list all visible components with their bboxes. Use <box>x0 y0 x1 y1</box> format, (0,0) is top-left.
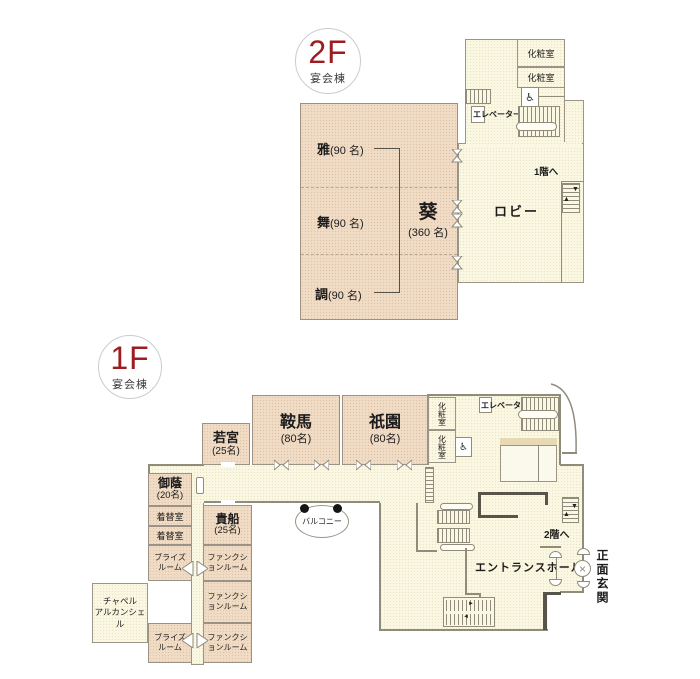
overhang-strip <box>500 438 557 445</box>
floor-plan-canvas: 2F 宴会棟 雅(90 名) 舞(90 名) 調(90 名) 葵 (360 名)… <box>0 0 700 679</box>
door-icon <box>314 459 329 471</box>
door-icon <box>451 200 463 214</box>
revolving-door-icon: × <box>574 560 591 577</box>
stairs-icon <box>437 510 470 524</box>
stair-handrail <box>440 544 475 551</box>
wheelchair-icon: ♿ <box>459 442 468 453</box>
arrow-right-icon: ► <box>468 601 474 607</box>
room-miyabi-label: 雅(90 名) <box>317 139 364 158</box>
door-opening <box>221 462 235 467</box>
arrow-up-icon: ▲ <box>563 511 570 518</box>
bracket-tick-bottom <box>374 292 400 293</box>
wall-segment <box>379 503 381 631</box>
door-icon <box>451 256 463 270</box>
wall-segment <box>148 464 204 466</box>
door-swing-icon <box>577 548 590 555</box>
stairs-icon <box>562 497 579 523</box>
chapel-label: チャペル アルカンシェル <box>93 596 147 629</box>
wheelchair-access-box: ♿ <box>455 437 472 457</box>
stair-handrail <box>516 122 557 131</box>
wall-segment <box>561 181 584 182</box>
windbreak-wall <box>543 592 547 630</box>
floor2-level-label: 2F <box>308 36 347 68</box>
door-icon <box>397 459 412 471</box>
room-divider-dashed-2 <box>301 254 457 255</box>
balcony-label: バルコニー <box>302 516 342 527</box>
stairs-icon <box>465 89 491 104</box>
arrow-down-icon: ▼ <box>572 186 579 193</box>
room-dressing-1: 着替室 <box>148 506 192 526</box>
door-arrows-icon <box>182 561 208 576</box>
door-icon <box>356 459 371 471</box>
arrow-left-icon: ◄ <box>463 614 469 620</box>
room-gion: 祇園(80名) <box>342 395 428 465</box>
door-icon <box>451 149 463 163</box>
stairs-icon <box>446 614 492 625</box>
wall-segment <box>562 452 577 454</box>
room-mai-label: 舞(90 名) <box>317 212 364 231</box>
floor1-powder-room-2: 化粧室 <box>428 430 456 463</box>
room-divider-dashed-1 <box>301 187 457 188</box>
floor2-powder-room-1: 化粧室 <box>517 39 565 67</box>
wall-segment <box>560 464 584 466</box>
door-opening <box>221 500 235 505</box>
wheelchair-icon: ♿ <box>525 91 535 104</box>
room-wakamiya: 若宮(25名) <box>202 423 250 465</box>
room-aoi-label: 葵 (360 名) <box>400 197 456 240</box>
room-shirabe-label: 調(90 名) <box>315 284 362 303</box>
pillar-dot <box>333 504 342 513</box>
floor2-building-label: 宴会棟 <box>310 70 346 86</box>
floor2-lobby-right-extension <box>565 100 584 144</box>
arrow-up-icon: ▲ <box>563 196 570 203</box>
wall-segment <box>416 503 418 552</box>
bracket-tick-top <box>374 148 400 149</box>
floor1-powder-room-1: 化粧室 <box>428 397 456 430</box>
floor2-elevator-label: エレベーター <box>473 109 521 120</box>
room-function-3: ファンクションルーム <box>203 623 252 663</box>
to-floor2-label: 2階へ <box>544 526 570 541</box>
wheelchair-access-box: ♿ <box>521 87 539 107</box>
floor1-building-label: 宴会棟 <box>112 376 148 392</box>
wall-segment <box>556 558 557 579</box>
steps-icon <box>425 467 434 503</box>
floor2-powder-room-2: 化粧室 <box>517 67 565 88</box>
room-function-1: ファンクションルーム <box>203 545 252 581</box>
interior-wall <box>545 492 548 505</box>
wall-segment <box>540 546 561 548</box>
interior-wall <box>478 492 548 495</box>
to-floor1-label: 1階へ <box>534 164 558 178</box>
door-icon <box>451 214 463 228</box>
lobby-label: ロビー <box>494 201 539 220</box>
room-mikage: 御蔭(20名) <box>148 473 192 506</box>
hall-corner-notch <box>548 593 584 631</box>
wall-segment <box>465 548 467 595</box>
door-leaf <box>196 477 204 494</box>
main-entrance-label: 正面玄関 <box>594 549 611 605</box>
room-kifune: 貴船(25名) <box>203 505 252 545</box>
door-icon <box>274 459 289 471</box>
floor1-badge: 1F 宴会棟 <box>98 335 162 399</box>
lobby-merge-patch <box>466 142 582 146</box>
wall-segment <box>416 550 437 552</box>
arrow-down-icon: ▼ <box>571 503 578 510</box>
floor2-badge: 2F 宴会棟 <box>295 28 361 94</box>
entrance-hall-label: エントランスホール <box>475 559 583 575</box>
windbreak-wall <box>543 592 561 595</box>
floor1-level-label: 1F <box>110 342 149 374</box>
wall-segment <box>539 96 565 97</box>
room-function-2: ファンクションルーム <box>203 581 252 623</box>
stairs-icon <box>437 528 470 543</box>
service-core <box>500 445 557 482</box>
room-kurama: 鞍馬(80名) <box>252 395 340 465</box>
wall-segment <box>380 629 548 631</box>
chapel-room: チャペル アルカンシェル <box>92 583 148 643</box>
door-arrows-icon <box>182 633 208 648</box>
door-swing-icon <box>549 551 562 558</box>
room-dressing-2: 着替室 <box>148 526 192 545</box>
interior-wall <box>478 515 518 518</box>
wall-segment <box>427 394 561 396</box>
wall-segment <box>538 445 539 482</box>
stair-handrail <box>440 503 473 510</box>
wall-segment <box>560 591 584 593</box>
pillar-dot <box>300 504 309 513</box>
